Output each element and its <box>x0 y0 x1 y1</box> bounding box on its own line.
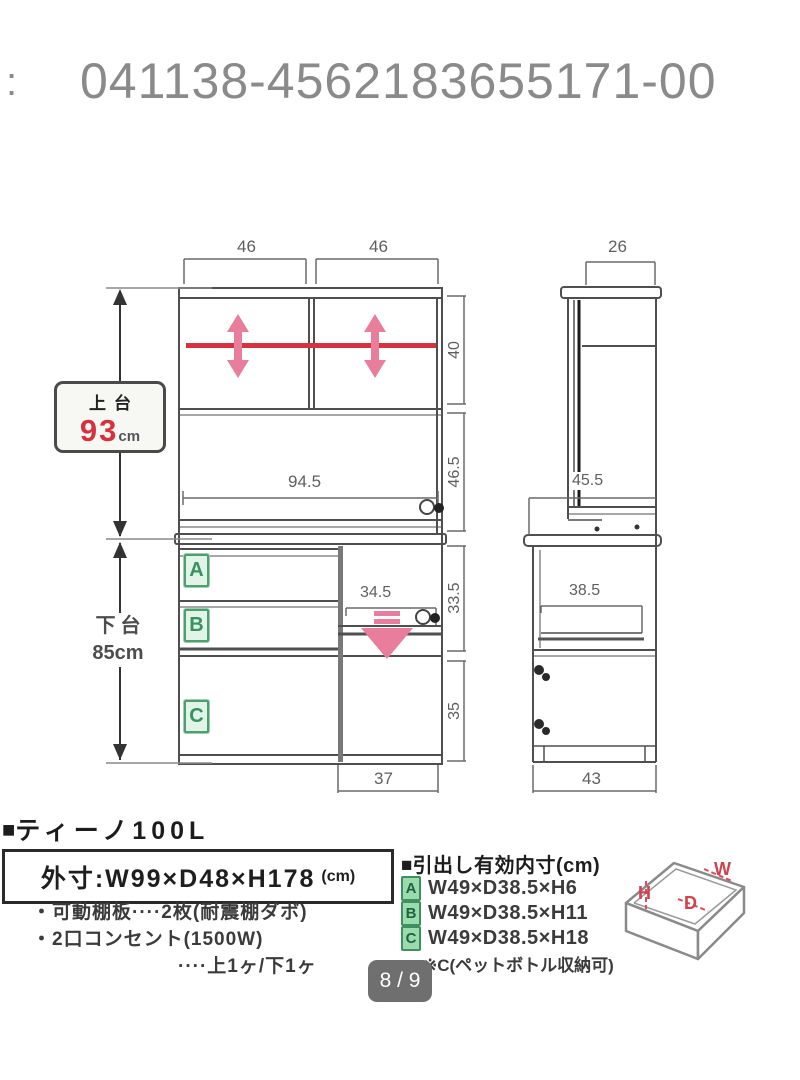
dim-base-depth: 43 <box>580 770 603 789</box>
drawer-spec-row-b: B W49×D38.5×H11 <box>401 901 588 926</box>
outer-size-box: 外寸:W99×D48×H178 (cm) <box>2 849 394 904</box>
drawer-b-badge: B <box>184 609 209 642</box>
lower-unit-height-label: 下台 85cm <box>80 613 156 667</box>
dim-open-section-height: 46.5 <box>446 440 466 504</box>
drawer-specs-heading: ■引出し有効内寸(cm) <box>401 849 600 878</box>
lower-unit-value: 85cm <box>80 640 156 667</box>
dim-tray-depth: 38.5 <box>567 582 602 600</box>
spec-a-badge: A <box>401 876 421 901</box>
product-name-text: ティーノ100L <box>15 817 209 845</box>
dim-door-section-height: 35 <box>446 679 466 743</box>
drawer-c-badge: C <box>184 700 209 733</box>
axis-h-label: H <box>638 883 651 903</box>
spec-a-size: W49×D38.5×H6 <box>428 877 577 900</box>
spec-b-badge: B <box>401 901 421 926</box>
upper-unit-height-label: 上台 93cm <box>54 381 166 453</box>
drawer-specs-heading-text: 引出し有効内寸(cm) <box>412 855 600 877</box>
spec-c-size: W49×D38.5×H18 <box>428 927 589 950</box>
header-colon: : <box>6 60 17 105</box>
outer-size-unit: (cm) <box>321 868 355 886</box>
product-name: ■ティーノ100L <box>2 811 209 847</box>
product-image-page: : 041138-4562183655171-00 <box>0 0 800 1080</box>
feature-shelves: ・可動棚板····2枚(耐震棚ダボ) <box>32 897 308 924</box>
drawer-spec-row-a: A W49×D38.5×H6 <box>401 876 577 901</box>
drawer-illustration: W H D <box>618 843 753 961</box>
lower-unit-name: 下台 <box>80 613 161 640</box>
drawer-a-badge: A <box>184 554 209 587</box>
axis-w-label: W <box>714 859 731 879</box>
dim-door-width: 37 <box>372 770 395 789</box>
upper-unit-name: 上台 <box>89 389 139 414</box>
page-indicator: 8 / 9 <box>368 960 432 1002</box>
product-code: 041138-4562183655171-00 <box>80 52 717 110</box>
square-bullet-icon: ■ <box>401 855 412 876</box>
dim-top-left-width: 46 <box>235 238 258 257</box>
spec-c-badge: C <box>401 926 421 951</box>
spec-b-size: W49×D38.5×H11 <box>428 902 588 925</box>
square-bullet-icon: ■ <box>2 817 15 842</box>
drawer-spec-row-c: C W49×D38.5×H18 <box>401 926 589 951</box>
outer-size-text: 外寸:W99×D48×H178 <box>41 859 316 895</box>
dim-drawer-section-height: 33.5 <box>446 566 466 630</box>
dim-tray-width: 34.5 <box>358 584 393 602</box>
axis-d-label: D <box>684 893 697 913</box>
dim-side-top-depth: 26 <box>606 238 629 257</box>
upper-unit-value: 93 <box>80 413 118 448</box>
drawer-spec-note: ※C(ペットボトル収納可) <box>423 951 614 976</box>
dim-counter-depth: 45.5 <box>570 472 605 490</box>
dim-shelf-section-height: 40 <box>446 318 466 382</box>
feature-outlet: ・2口コンセント(1500W) <box>32 924 263 951</box>
dim-top-right-width: 46 <box>367 238 390 257</box>
feature-outlet-position: ····上1ヶ/下1ヶ <box>178 951 317 978</box>
dim-counter-width: 94.5 <box>286 473 323 492</box>
upper-unit-unit: cm <box>118 428 140 445</box>
